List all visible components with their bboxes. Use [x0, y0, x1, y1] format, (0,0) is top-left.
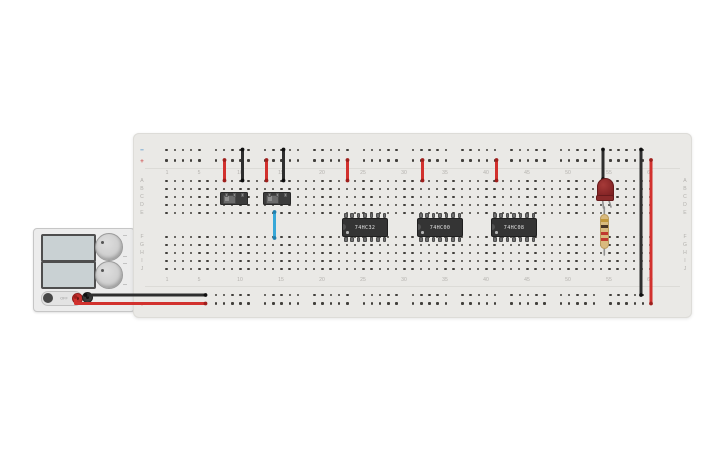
breadboard-hole[interactable]: [477, 196, 480, 199]
breadboard-hole[interactable]: [198, 180, 201, 183]
breadboard-rail-hole[interactable]: [239, 159, 242, 162]
breadboard-hole[interactable]: [436, 196, 439, 199]
breadboard-hole[interactable]: [575, 268, 578, 271]
breadboard-hole[interactable]: [280, 244, 283, 247]
breadboard-hole[interactable]: [338, 244, 341, 247]
breadboard-hole[interactable]: [379, 260, 382, 263]
breadboard-hole[interactable]: [297, 244, 300, 247]
breadboard-rail-hole[interactable]: [321, 294, 324, 297]
breadboard-hole[interactable]: [584, 260, 587, 263]
breadboard-rail-hole[interactable]: [543, 302, 546, 305]
breadboard-hole[interactable]: [362, 252, 365, 255]
breadboard-hole[interactable]: [461, 244, 464, 247]
breadboard-hole[interactable]: [436, 260, 439, 263]
breadboard-rail-hole[interactable]: [198, 294, 201, 297]
breadboard-hole[interactable]: [288, 180, 291, 183]
breadboard-hole[interactable]: [247, 236, 250, 239]
breadboard-hole[interactable]: [559, 268, 562, 271]
power-supply[interactable]: OFF: [33, 228, 135, 312]
breadboard-hole[interactable]: [239, 252, 242, 255]
breadboard-hole[interactable]: [625, 212, 628, 215]
breadboard-hole[interactable]: [247, 204, 250, 207]
breadboard-hole[interactable]: [608, 268, 611, 271]
breadboard-rail-hole[interactable]: [469, 149, 472, 152]
breadboard-hole[interactable]: [370, 260, 373, 263]
breadboard-hole[interactable]: [510, 196, 513, 199]
breadboard-hole[interactable]: [559, 236, 562, 239]
breadboard-hole[interactable]: [370, 204, 373, 207]
breadboard-hole[interactable]: [641, 180, 644, 183]
breadboard-rail-hole[interactable]: [519, 294, 522, 297]
breadboard-hole[interactable]: [256, 252, 259, 255]
breadboard-hole[interactable]: [567, 196, 570, 199]
breadboard-hole[interactable]: [493, 260, 496, 263]
breadboard-hole[interactable]: [633, 260, 636, 263]
breadboard-rail-hole[interactable]: [289, 302, 292, 305]
breadboard-hole[interactable]: [231, 188, 234, 191]
breadboard-hole[interactable]: [362, 244, 365, 247]
breadboard-rail-hole[interactable]: [289, 294, 292, 297]
breadboard-hole[interactable]: [165, 204, 168, 207]
breadboard-hole[interactable]: [403, 260, 406, 263]
breadboard-hole[interactable]: [526, 196, 529, 199]
ic-74hc32[interactable]: 74HC32: [342, 218, 388, 237]
breadboard-hole[interactable]: [165, 188, 168, 191]
breadboard-hole[interactable]: [403, 188, 406, 191]
breadboard-hole[interactable]: [428, 188, 431, 191]
breadboard-hole[interactable]: [600, 260, 603, 263]
breadboard-hole[interactable]: [584, 188, 587, 191]
breadboard-hole[interactable]: [321, 268, 324, 271]
breadboard-hole[interactable]: [411, 212, 414, 215]
breadboard-hole[interactable]: [272, 180, 275, 183]
slide-switch-1[interactable]: [220, 192, 248, 205]
breadboard-rail-hole[interactable]: [519, 149, 522, 152]
breadboard-hole[interactable]: [239, 236, 242, 239]
breadboard-hole[interactable]: [387, 268, 390, 271]
breadboard-rail-hole[interactable]: [231, 149, 234, 152]
breadboard-hole[interactable]: [387, 204, 390, 207]
breadboard-hole[interactable]: [551, 244, 554, 247]
breadboard-hole[interactable]: [395, 180, 398, 183]
breadboard-hole[interactable]: [411, 180, 414, 183]
breadboard-hole[interactable]: [329, 188, 332, 191]
breadboard-hole[interactable]: [198, 244, 201, 247]
breadboard-hole[interactable]: [329, 196, 332, 199]
breadboard-hole[interactable]: [633, 268, 636, 271]
breadboard-hole[interactable]: [436, 188, 439, 191]
breadboard-rail-hole[interactable]: [560, 159, 563, 162]
breadboard-hole[interactable]: [641, 236, 644, 239]
breadboard-hole[interactable]: [272, 268, 275, 271]
breadboard-hole[interactable]: [633, 204, 636, 207]
breadboard-hole[interactable]: [288, 260, 291, 263]
breadboard-hole[interactable]: [600, 204, 603, 207]
breadboard-hole[interactable]: [477, 252, 480, 255]
breadboard-hole[interactable]: [444, 252, 447, 255]
breadboard-rail-hole[interactable]: [371, 159, 374, 162]
breadboard-rail-hole[interactable]: [412, 294, 415, 297]
breadboard-rail-hole[interactable]: [617, 149, 620, 152]
breadboard-hole[interactable]: [567, 260, 570, 263]
breadboard-hole[interactable]: [346, 260, 349, 263]
breadboard-rail-hole[interactable]: [412, 159, 415, 162]
breadboard-hole[interactable]: [370, 252, 373, 255]
breadboard-hole[interactable]: [510, 268, 513, 271]
breadboard-hole[interactable]: [165, 196, 168, 199]
breadboard-hole[interactable]: [395, 212, 398, 215]
breadboard-hole[interactable]: [354, 268, 357, 271]
breadboard-rail-hole[interactable]: [165, 159, 168, 162]
breadboard-hole[interactable]: [231, 180, 234, 183]
breadboard-hole[interactable]: [493, 188, 496, 191]
breadboard-hole[interactable]: [362, 188, 365, 191]
breadboard-hole[interactable]: [592, 236, 595, 239]
breadboard-hole[interactable]: [526, 180, 529, 183]
breadboard-rail-hole[interactable]: [510, 302, 513, 305]
breadboard-rail-hole[interactable]: [371, 302, 374, 305]
breadboard-hole[interactable]: [190, 236, 193, 239]
breadboard-rail-hole[interactable]: [223, 159, 226, 162]
breadboard-hole[interactable]: [477, 268, 480, 271]
breadboard-hole[interactable]: [280, 236, 283, 239]
breadboard-rail-hole[interactable]: [280, 294, 283, 297]
breadboard-rail-hole[interactable]: [272, 302, 275, 305]
breadboard-hole[interactable]: [452, 252, 455, 255]
breadboard-rail-hole[interactable]: [321, 159, 324, 162]
breadboard-hole[interactable]: [543, 188, 546, 191]
breadboard-hole[interactable]: [452, 180, 455, 183]
breadboard-hole[interactable]: [329, 236, 332, 239]
breadboard-rail-hole[interactable]: [478, 302, 481, 305]
breadboard-hole[interactable]: [346, 180, 349, 183]
slide-switch-2[interactable]: [263, 192, 291, 205]
breadboard-hole[interactable]: [485, 252, 488, 255]
breadboard-hole[interactable]: [420, 244, 423, 247]
breadboard-hole[interactable]: [436, 204, 439, 207]
breadboard-hole[interactable]: [436, 268, 439, 271]
breadboard-hole[interactable]: [190, 188, 193, 191]
breadboard-hole[interactable]: [526, 188, 529, 191]
breadboard-rail-hole[interactable]: [486, 294, 489, 297]
breadboard-hole[interactable]: [338, 260, 341, 263]
breadboard-hole[interactable]: [608, 252, 611, 255]
breadboard-rail-hole[interactable]: [280, 149, 283, 152]
breadboard-rail-hole[interactable]: [469, 159, 472, 162]
breadboard-rail-hole[interactable]: [346, 159, 349, 162]
breadboard-hole[interactable]: [305, 204, 308, 207]
breadboard-rail-hole[interactable]: [609, 159, 612, 162]
breadboard-hole[interactable]: [403, 236, 406, 239]
breadboard-hole[interactable]: [321, 180, 324, 183]
breadboard-hole[interactable]: [198, 252, 201, 255]
breadboard-hole[interactable]: [559, 204, 562, 207]
breadboard-rail-hole[interactable]: [625, 302, 628, 305]
breadboard-hole[interactable]: [584, 244, 587, 247]
breadboard-rail-hole[interactable]: [165, 294, 168, 297]
breadboard-hole[interactable]: [256, 212, 259, 215]
breadboard-hole[interactable]: [174, 244, 177, 247]
breadboard-hole[interactable]: [346, 204, 349, 207]
breadboard-rail-hole[interactable]: [436, 149, 439, 152]
breadboard-hole[interactable]: [321, 252, 324, 255]
breadboard-hole[interactable]: [354, 196, 357, 199]
breadboard-hole[interactable]: [174, 268, 177, 271]
breadboard-hole[interactable]: [174, 252, 177, 255]
breadboard-rail-hole[interactable]: [625, 294, 628, 297]
breadboard-hole[interactable]: [379, 244, 382, 247]
breadboard-hole[interactable]: [346, 196, 349, 199]
breadboard-hole[interactable]: [461, 268, 464, 271]
breadboard-hole[interactable]: [543, 252, 546, 255]
breadboard-rail-hole[interactable]: [330, 159, 333, 162]
breadboard-rail-hole[interactable]: [297, 302, 300, 305]
breadboard-hole[interactable]: [616, 268, 619, 271]
breadboard-rail-hole[interactable]: [346, 302, 349, 305]
breadboard-hole[interactable]: [477, 260, 480, 263]
breadboard-rail-hole[interactable]: [264, 159, 267, 162]
breadboard-rail-hole[interactable]: [609, 294, 612, 297]
breadboard-rail-hole[interactable]: [395, 149, 398, 152]
breadboard-hole[interactable]: [584, 204, 587, 207]
breadboard-hole[interactable]: [641, 204, 644, 207]
breadboard-hole[interactable]: [231, 260, 234, 263]
breadboard-rail-hole[interactable]: [445, 302, 448, 305]
breadboard-rail-hole[interactable]: [289, 149, 292, 152]
breadboard-hole[interactable]: [567, 244, 570, 247]
breadboard-rail-hole[interactable]: [584, 149, 587, 152]
breadboard-hole[interactable]: [223, 260, 226, 263]
breadboard-hole[interactable]: [543, 244, 546, 247]
breadboard-hole[interactable]: [182, 212, 185, 215]
breadboard-hole[interactable]: [625, 180, 628, 183]
breadboard-rail-hole[interactable]: [272, 149, 275, 152]
breadboard-hole[interactable]: [395, 252, 398, 255]
breadboard-hole[interactable]: [329, 260, 332, 263]
breadboard-rail-hole[interactable]: [363, 294, 366, 297]
breadboard-hole[interactable]: [477, 212, 480, 215]
breadboard-hole[interactable]: [395, 244, 398, 247]
breadboard-rail-hole[interactable]: [560, 149, 563, 152]
breadboard-hole[interactable]: [633, 188, 636, 191]
breadboard-hole[interactable]: [485, 188, 488, 191]
breadboard-hole[interactable]: [280, 260, 283, 263]
breadboard-hole[interactable]: [215, 244, 218, 247]
breadboard-hole[interactable]: [215, 268, 218, 271]
breadboard-hole[interactable]: [485, 268, 488, 271]
breadboard-hole[interactable]: [403, 180, 406, 183]
breadboard-rail-hole[interactable]: [239, 149, 242, 152]
breadboard-hole[interactable]: [247, 212, 250, 215]
breadboard-hole[interactable]: [239, 268, 242, 271]
breadboard-rail-hole[interactable]: [239, 302, 242, 305]
breadboard-rail-hole[interactable]: [174, 159, 177, 162]
breadboard-hole[interactable]: [395, 204, 398, 207]
breadboard-rail-hole[interactable]: [215, 302, 218, 305]
breadboard-rail-hole[interactable]: [535, 159, 538, 162]
breadboard-rail-hole[interactable]: [297, 149, 300, 152]
breadboard-hole[interactable]: [354, 252, 357, 255]
breadboard-hole[interactable]: [288, 252, 291, 255]
breadboard-hole[interactable]: [190, 212, 193, 215]
breadboard-rail-hole[interactable]: [519, 302, 522, 305]
breadboard-rail-hole[interactable]: [272, 159, 275, 162]
breadboard-hole[interactable]: [256, 268, 259, 271]
breadboard-hole[interactable]: [247, 196, 250, 199]
breadboard-rail-hole[interactable]: [198, 159, 201, 162]
breadboard-rail-hole[interactable]: [510, 149, 513, 152]
breadboard-hole[interactable]: [395, 260, 398, 263]
breadboard-rail-hole[interactable]: [223, 302, 226, 305]
breadboard-rail-hole[interactable]: [182, 149, 185, 152]
breadboard-hole[interactable]: [321, 188, 324, 191]
breadboard-hole[interactable]: [485, 244, 488, 247]
breadboard-hole[interactable]: [518, 188, 521, 191]
breadboard-hole[interactable]: [403, 268, 406, 271]
breadboard-hole[interactable]: [370, 188, 373, 191]
breadboard-rail-hole[interactable]: [174, 149, 177, 152]
breadboard-rail-hole[interactable]: [338, 294, 341, 297]
breadboard-hole[interactable]: [485, 212, 488, 215]
breadboard-hole[interactable]: [625, 260, 628, 263]
breadboard-hole[interactable]: [518, 260, 521, 263]
breadboard-hole[interactable]: [616, 236, 619, 239]
breadboard-hole[interactable]: [526, 252, 529, 255]
breadboard-rail-hole[interactable]: [247, 302, 250, 305]
breadboard-hole[interactable]: [174, 236, 177, 239]
breadboard-hole[interactable]: [338, 212, 341, 215]
breadboard-hole[interactable]: [502, 180, 505, 183]
breadboard-hole[interactable]: [256, 244, 259, 247]
breadboard-hole[interactable]: [280, 188, 283, 191]
breadboard-hole[interactable]: [329, 268, 332, 271]
breadboard-hole[interactable]: [469, 252, 472, 255]
breadboard-rail-hole[interactable]: [247, 159, 250, 162]
breadboard-rail-hole[interactable]: [469, 302, 472, 305]
breadboard-hole[interactable]: [272, 244, 275, 247]
breadboard-hole[interactable]: [215, 180, 218, 183]
breadboard-hole[interactable]: [329, 180, 332, 183]
breadboard-hole[interactable]: [247, 260, 250, 263]
breadboard-hole[interactable]: [182, 188, 185, 191]
breadboard-hole[interactable]: [354, 204, 357, 207]
breadboard-hole[interactable]: [206, 204, 209, 207]
breadboard-hole[interactable]: [469, 180, 472, 183]
breadboard-hole[interactable]: [518, 180, 521, 183]
breadboard-hole[interactable]: [534, 244, 537, 247]
breadboard-hole[interactable]: [297, 188, 300, 191]
breadboard-hole[interactable]: [297, 268, 300, 271]
breadboard-hole[interactable]: [534, 196, 537, 199]
ic-74hc08[interactable]: 74HC08: [491, 218, 537, 237]
breadboard-rail-hole[interactable]: [182, 302, 185, 305]
breadboard-hole[interactable]: [264, 212, 267, 215]
breadboard-hole[interactable]: [420, 196, 423, 199]
breadboard-hole[interactable]: [206, 188, 209, 191]
breadboard-hole[interactable]: [592, 268, 595, 271]
breadboard-hole[interactable]: [379, 196, 382, 199]
breadboard-rail-hole[interactable]: [182, 294, 185, 297]
breadboard-rail-hole[interactable]: [436, 302, 439, 305]
breadboard-hole[interactable]: [567, 188, 570, 191]
breadboard-hole[interactable]: [354, 180, 357, 183]
breadboard-hole[interactable]: [534, 268, 537, 271]
breadboard-hole[interactable]: [338, 252, 341, 255]
breadboard-rail-hole[interactable]: [478, 149, 481, 152]
breadboard-hole[interactable]: [608, 212, 611, 215]
breadboard-rail-hole[interactable]: [469, 294, 472, 297]
breadboard-hole[interactable]: [575, 180, 578, 183]
breadboard-hole[interactable]: [403, 244, 406, 247]
breadboard-rail-hole[interactable]: [395, 159, 398, 162]
breadboard-hole[interactable]: [469, 196, 472, 199]
breadboard-rail-hole[interactable]: [625, 159, 628, 162]
breadboard-hole[interactable]: [575, 204, 578, 207]
breadboard-hole[interactable]: [551, 236, 554, 239]
breadboard-hole[interactable]: [387, 244, 390, 247]
breadboard-hole[interactable]: [190, 196, 193, 199]
breadboard-rail-hole[interactable]: [584, 159, 587, 162]
breadboard-hole[interactable]: [403, 212, 406, 215]
breadboard-hole[interactable]: [280, 180, 283, 183]
breadboard-hole[interactable]: [461, 196, 464, 199]
breadboard-hole[interactable]: [247, 268, 250, 271]
breadboard-hole[interactable]: [288, 244, 291, 247]
breadboard-hole[interactable]: [182, 236, 185, 239]
breadboard-hole[interactable]: [452, 196, 455, 199]
breadboard-hole[interactable]: [452, 260, 455, 263]
breadboard-hole[interactable]: [575, 244, 578, 247]
breadboard-hole[interactable]: [174, 188, 177, 191]
breadboard-hole[interactable]: [649, 204, 652, 207]
breadboard-hole[interactable]: [534, 204, 537, 207]
breadboard-hole[interactable]: [633, 212, 636, 215]
breadboard-hole[interactable]: [411, 236, 414, 239]
breadboard-hole[interactable]: [493, 180, 496, 183]
breadboard-hole[interactable]: [288, 268, 291, 271]
breadboard-hole[interactable]: [461, 180, 464, 183]
breadboard-rail-hole[interactable]: [313, 159, 316, 162]
breadboard-rail-hole[interactable]: [223, 149, 226, 152]
breadboard-hole[interactable]: [592, 244, 595, 247]
breadboard-rail-hole[interactable]: [174, 302, 177, 305]
breadboard-rail-hole[interactable]: [420, 302, 423, 305]
breadboard-hole[interactable]: [493, 268, 496, 271]
breadboard-rail-hole[interactable]: [387, 294, 390, 297]
breadboard-hole[interactable]: [477, 244, 480, 247]
breadboard-hole[interactable]: [567, 204, 570, 207]
breadboard-hole[interactable]: [313, 196, 316, 199]
breadboard-hole[interactable]: [592, 188, 595, 191]
breadboard-hole[interactable]: [526, 204, 529, 207]
breadboard-rail-hole[interactable]: [543, 149, 546, 152]
breadboard-hole[interactable]: [502, 204, 505, 207]
breadboard-hole[interactable]: [362, 204, 365, 207]
breadboard-hole[interactable]: [485, 260, 488, 263]
breadboard-hole[interactable]: [264, 188, 267, 191]
breadboard-hole[interactable]: [436, 252, 439, 255]
breadboard-hole[interactable]: [165, 180, 168, 183]
breadboard-hole[interactable]: [526, 260, 529, 263]
negative-terminal[interactable]: [82, 292, 93, 303]
breadboard-hole[interactable]: [264, 244, 267, 247]
breadboard-hole[interactable]: [165, 212, 168, 215]
breadboard-hole[interactable]: [305, 268, 308, 271]
breadboard-hole[interactable]: [567, 252, 570, 255]
breadboard-hole[interactable]: [313, 180, 316, 183]
breadboard-hole[interactable]: [592, 204, 595, 207]
breadboard-hole[interactable]: [633, 236, 636, 239]
